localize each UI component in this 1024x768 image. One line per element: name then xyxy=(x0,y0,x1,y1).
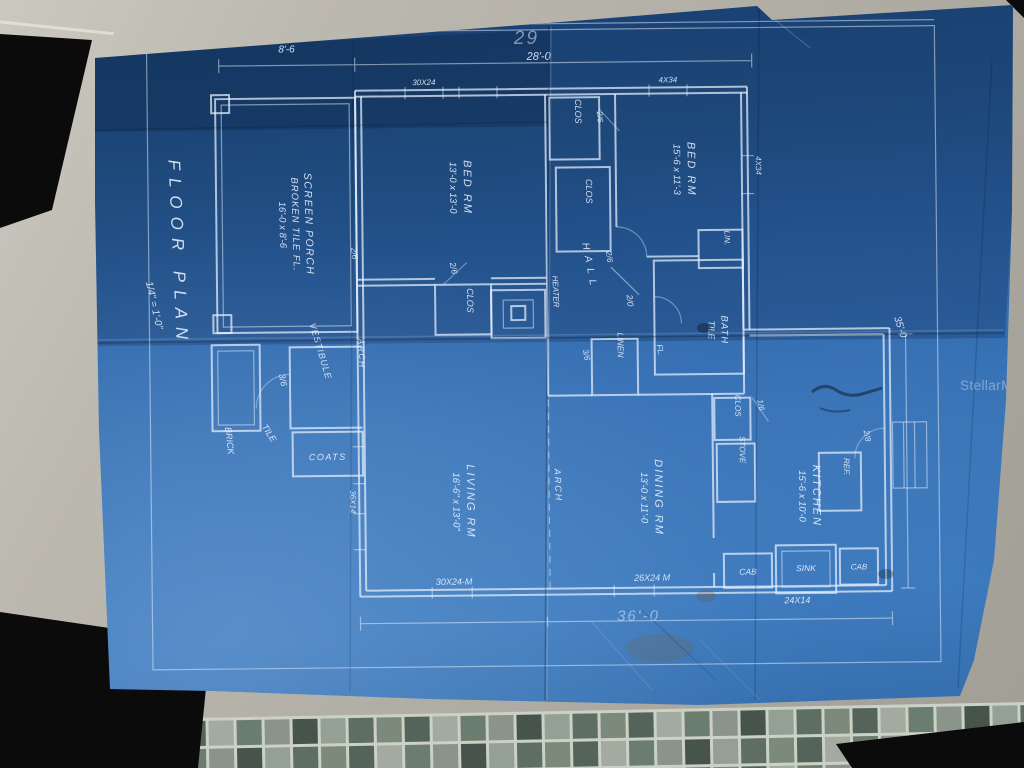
mosaic-tile xyxy=(657,740,682,765)
label-clos-2: CLOS xyxy=(573,99,583,124)
label-kitchen-size: 15'-6 x 10'-0 xyxy=(796,470,808,523)
paper-creases xyxy=(94,6,1004,700)
label-dining-name: DINING RM xyxy=(652,459,665,536)
closet-bed1 xyxy=(435,284,492,335)
label-vestibule: VESTIBULE xyxy=(307,322,333,381)
top-dimension-line xyxy=(219,54,752,74)
mosaic-tile xyxy=(432,716,457,741)
win-back2-size: 26X24 M xyxy=(633,572,671,582)
photo-scene: 8'-6 28'-0 29 SCREEN PORCH BROKEN TILE F… xyxy=(0,0,1024,768)
mosaic-tile xyxy=(685,739,710,764)
mosaic-tile xyxy=(460,715,485,740)
label-hall: HALL xyxy=(579,242,599,292)
label-living: LIVING RM 16'-6" x 13'-0" xyxy=(450,464,477,539)
label-dining: DINING RM 13'-0 x 11'-0 xyxy=(638,459,665,536)
mosaic-tile xyxy=(433,744,458,768)
label-dining-size: 13'-0 x 11'-0 xyxy=(638,472,650,524)
label-bed1: BED RM 13'-0 x 13'-0 xyxy=(447,160,474,215)
mosaic-tile xyxy=(573,741,598,766)
bath-walls xyxy=(654,260,744,375)
mosaic-tile xyxy=(209,748,234,768)
mosaic-tile xyxy=(880,707,905,732)
dim-porch-width: 8'-6 xyxy=(278,44,295,55)
door-size-d26d: 2/6 xyxy=(349,246,360,260)
label-arch-1: ARCH xyxy=(552,468,564,503)
label-arch-2: ARCH xyxy=(356,337,367,369)
label-fl: FL. xyxy=(655,344,666,357)
window-ticks-bottom xyxy=(432,585,654,599)
blueprint-paper: 8'-6 28'-0 29 SCREEN PORCH BROKEN TILE F… xyxy=(0,0,1024,768)
mosaic-tile xyxy=(629,740,654,765)
mosaic-tile xyxy=(405,745,430,768)
door-swing-bed2 xyxy=(616,227,646,257)
mosaic-tile xyxy=(852,708,877,733)
wall-right-lower xyxy=(883,328,892,591)
label-coats: COATS xyxy=(309,452,347,462)
mosaic-tile xyxy=(797,737,822,762)
label-linen: LINEN xyxy=(616,332,626,358)
label-screen-porch-size: 16'-0 x 8'-6 xyxy=(276,202,288,249)
mosaic-tile xyxy=(684,711,709,736)
label-cab-1: CAB xyxy=(739,567,757,577)
ref-box xyxy=(819,452,862,510)
porch-post xyxy=(211,95,229,113)
mosaic-tile xyxy=(208,720,233,745)
door-size-d36b: 3/6 xyxy=(581,349,592,362)
mosaic-tile xyxy=(348,718,373,743)
win-bed2-size: 4X34 xyxy=(658,75,677,84)
front-stoop-inner xyxy=(218,351,255,425)
linen-closet xyxy=(592,339,639,395)
porch-post xyxy=(213,315,231,333)
label-bath-name: BATH xyxy=(718,315,729,344)
mosaic-tile xyxy=(824,708,849,733)
mosaic-tile xyxy=(769,738,794,763)
mosaic-tile xyxy=(265,747,290,768)
floor-plan-drawing: 8'-6 28'-0 29 SCREEN PORCH BROKEN TILE F… xyxy=(0,0,1024,768)
mosaic-tile xyxy=(237,748,262,768)
door-size-d26b: 2/6 xyxy=(595,110,605,123)
mosaic-tile xyxy=(601,741,626,766)
mosaic-tile xyxy=(545,742,570,767)
mosaic-tile xyxy=(656,712,681,737)
mosaic-tile xyxy=(377,745,402,768)
label-heater: HEATER xyxy=(550,275,560,307)
mosaic-tile xyxy=(461,743,486,768)
mosaic-tile xyxy=(489,743,514,768)
stove-box xyxy=(717,444,756,502)
door-swing-bath xyxy=(654,296,681,323)
mosaic-tile xyxy=(908,707,933,732)
label-stove: STOVE xyxy=(738,436,747,464)
mosaic-tile xyxy=(376,717,401,742)
label-bed1-name: BED RM xyxy=(461,160,474,215)
mosaic-tile xyxy=(825,764,850,768)
plan-title: FLOOR PLAN xyxy=(164,159,191,347)
mosaic-tile xyxy=(349,746,374,768)
chimney-outer xyxy=(491,290,545,339)
mosaic-tile xyxy=(517,742,542,767)
mosaic-tile xyxy=(236,720,261,745)
back-stoop xyxy=(892,422,927,488)
kitchen-closet xyxy=(714,398,750,440)
chimney-inner xyxy=(503,300,533,328)
back-stoop-steps xyxy=(903,422,915,488)
closet-lin xyxy=(698,230,742,268)
label-ref: REF. xyxy=(842,458,851,475)
label-brick: BRICK xyxy=(223,426,236,455)
label-screen-porch-name: SCREEN PORCH xyxy=(301,173,316,276)
door-size-d28: 2/8 xyxy=(861,429,872,443)
mosaic-tile xyxy=(796,709,821,734)
label-clos-4: CLOS xyxy=(733,395,742,418)
mosaic-tile xyxy=(741,738,766,763)
wall-hall-south xyxy=(548,336,745,396)
label-tile: TILE xyxy=(260,422,279,444)
mosaic-tile xyxy=(516,714,541,739)
mosaic-tile xyxy=(712,711,737,736)
mosaic-tile xyxy=(628,712,653,737)
chimney-flue xyxy=(511,306,525,320)
mosaic-tile xyxy=(292,719,317,744)
right-dimension-line xyxy=(899,334,916,588)
mosaic-tile xyxy=(544,714,569,739)
dim-house-width: 28'-0 xyxy=(525,51,551,63)
door-size-d26a: 2/6 xyxy=(448,260,460,275)
label-screen-porch-note: BROKEN TILE FL. xyxy=(288,177,302,271)
mosaic-tile xyxy=(600,713,625,738)
win-sink-size: 24X14 xyxy=(783,595,810,605)
closet-hall-lower xyxy=(556,167,611,252)
mosaic-tile xyxy=(572,713,597,738)
win-top-size: 30X24 xyxy=(412,78,436,87)
label-bed2-name: BED RM xyxy=(685,142,698,197)
mosaic-tile xyxy=(264,719,289,744)
mosaic-tile xyxy=(404,717,429,742)
label-living-name: LIVING RM xyxy=(464,464,477,538)
dim-overall-depth: 35'-0 xyxy=(891,315,909,340)
label-clos-3: CLOS xyxy=(584,179,594,204)
mosaic-tile xyxy=(740,710,765,735)
label-screen-porch: SCREEN PORCH BROKEN TILE FL. 16'-0 x 8'-… xyxy=(275,173,316,277)
plan-ink: 8'-6 28'-0 29 SCREEN PORCH BROKEN TILE F… xyxy=(140,20,941,670)
label-bed2: BED RM 15'-6 x 11'-3 xyxy=(671,142,698,197)
label-living-size: 16'-6" x 13'-0" xyxy=(450,472,462,531)
mosaic-tile xyxy=(320,718,345,743)
label-cab-2: CAB xyxy=(851,562,868,571)
dim-overall-width: 36'-0 xyxy=(617,608,660,625)
mosaic-tile xyxy=(936,706,961,731)
sheet-number: 29 xyxy=(513,28,539,49)
label-kitchen-name: KITCHEN xyxy=(810,465,823,527)
label-lin: LIN. xyxy=(722,230,731,245)
label-bed2-size: 15'-6 x 11'-3 xyxy=(671,144,683,196)
win-back1-size: 30X24-M xyxy=(436,577,473,587)
door-size-d26c: 2/6 xyxy=(604,250,614,263)
label-clos-1: CLOS xyxy=(465,288,475,313)
hall-jamb xyxy=(611,267,639,295)
win-side-size: 36X14 xyxy=(348,490,357,514)
plan-scale: 1/4" = 1'-0" xyxy=(143,280,164,330)
mosaic-tile xyxy=(293,747,318,768)
door-size-d20: 2/0 xyxy=(625,293,636,307)
mosaic-tile xyxy=(321,746,346,768)
door-size-d36a: 3/6 xyxy=(277,373,289,387)
mosaic-tile xyxy=(768,710,793,735)
mosaic-tile xyxy=(488,715,513,740)
label-sink: SINK xyxy=(796,563,816,573)
label-bed1-size: 13'-0 x 13'-0 xyxy=(447,162,459,215)
mosaic-tile xyxy=(713,739,738,764)
